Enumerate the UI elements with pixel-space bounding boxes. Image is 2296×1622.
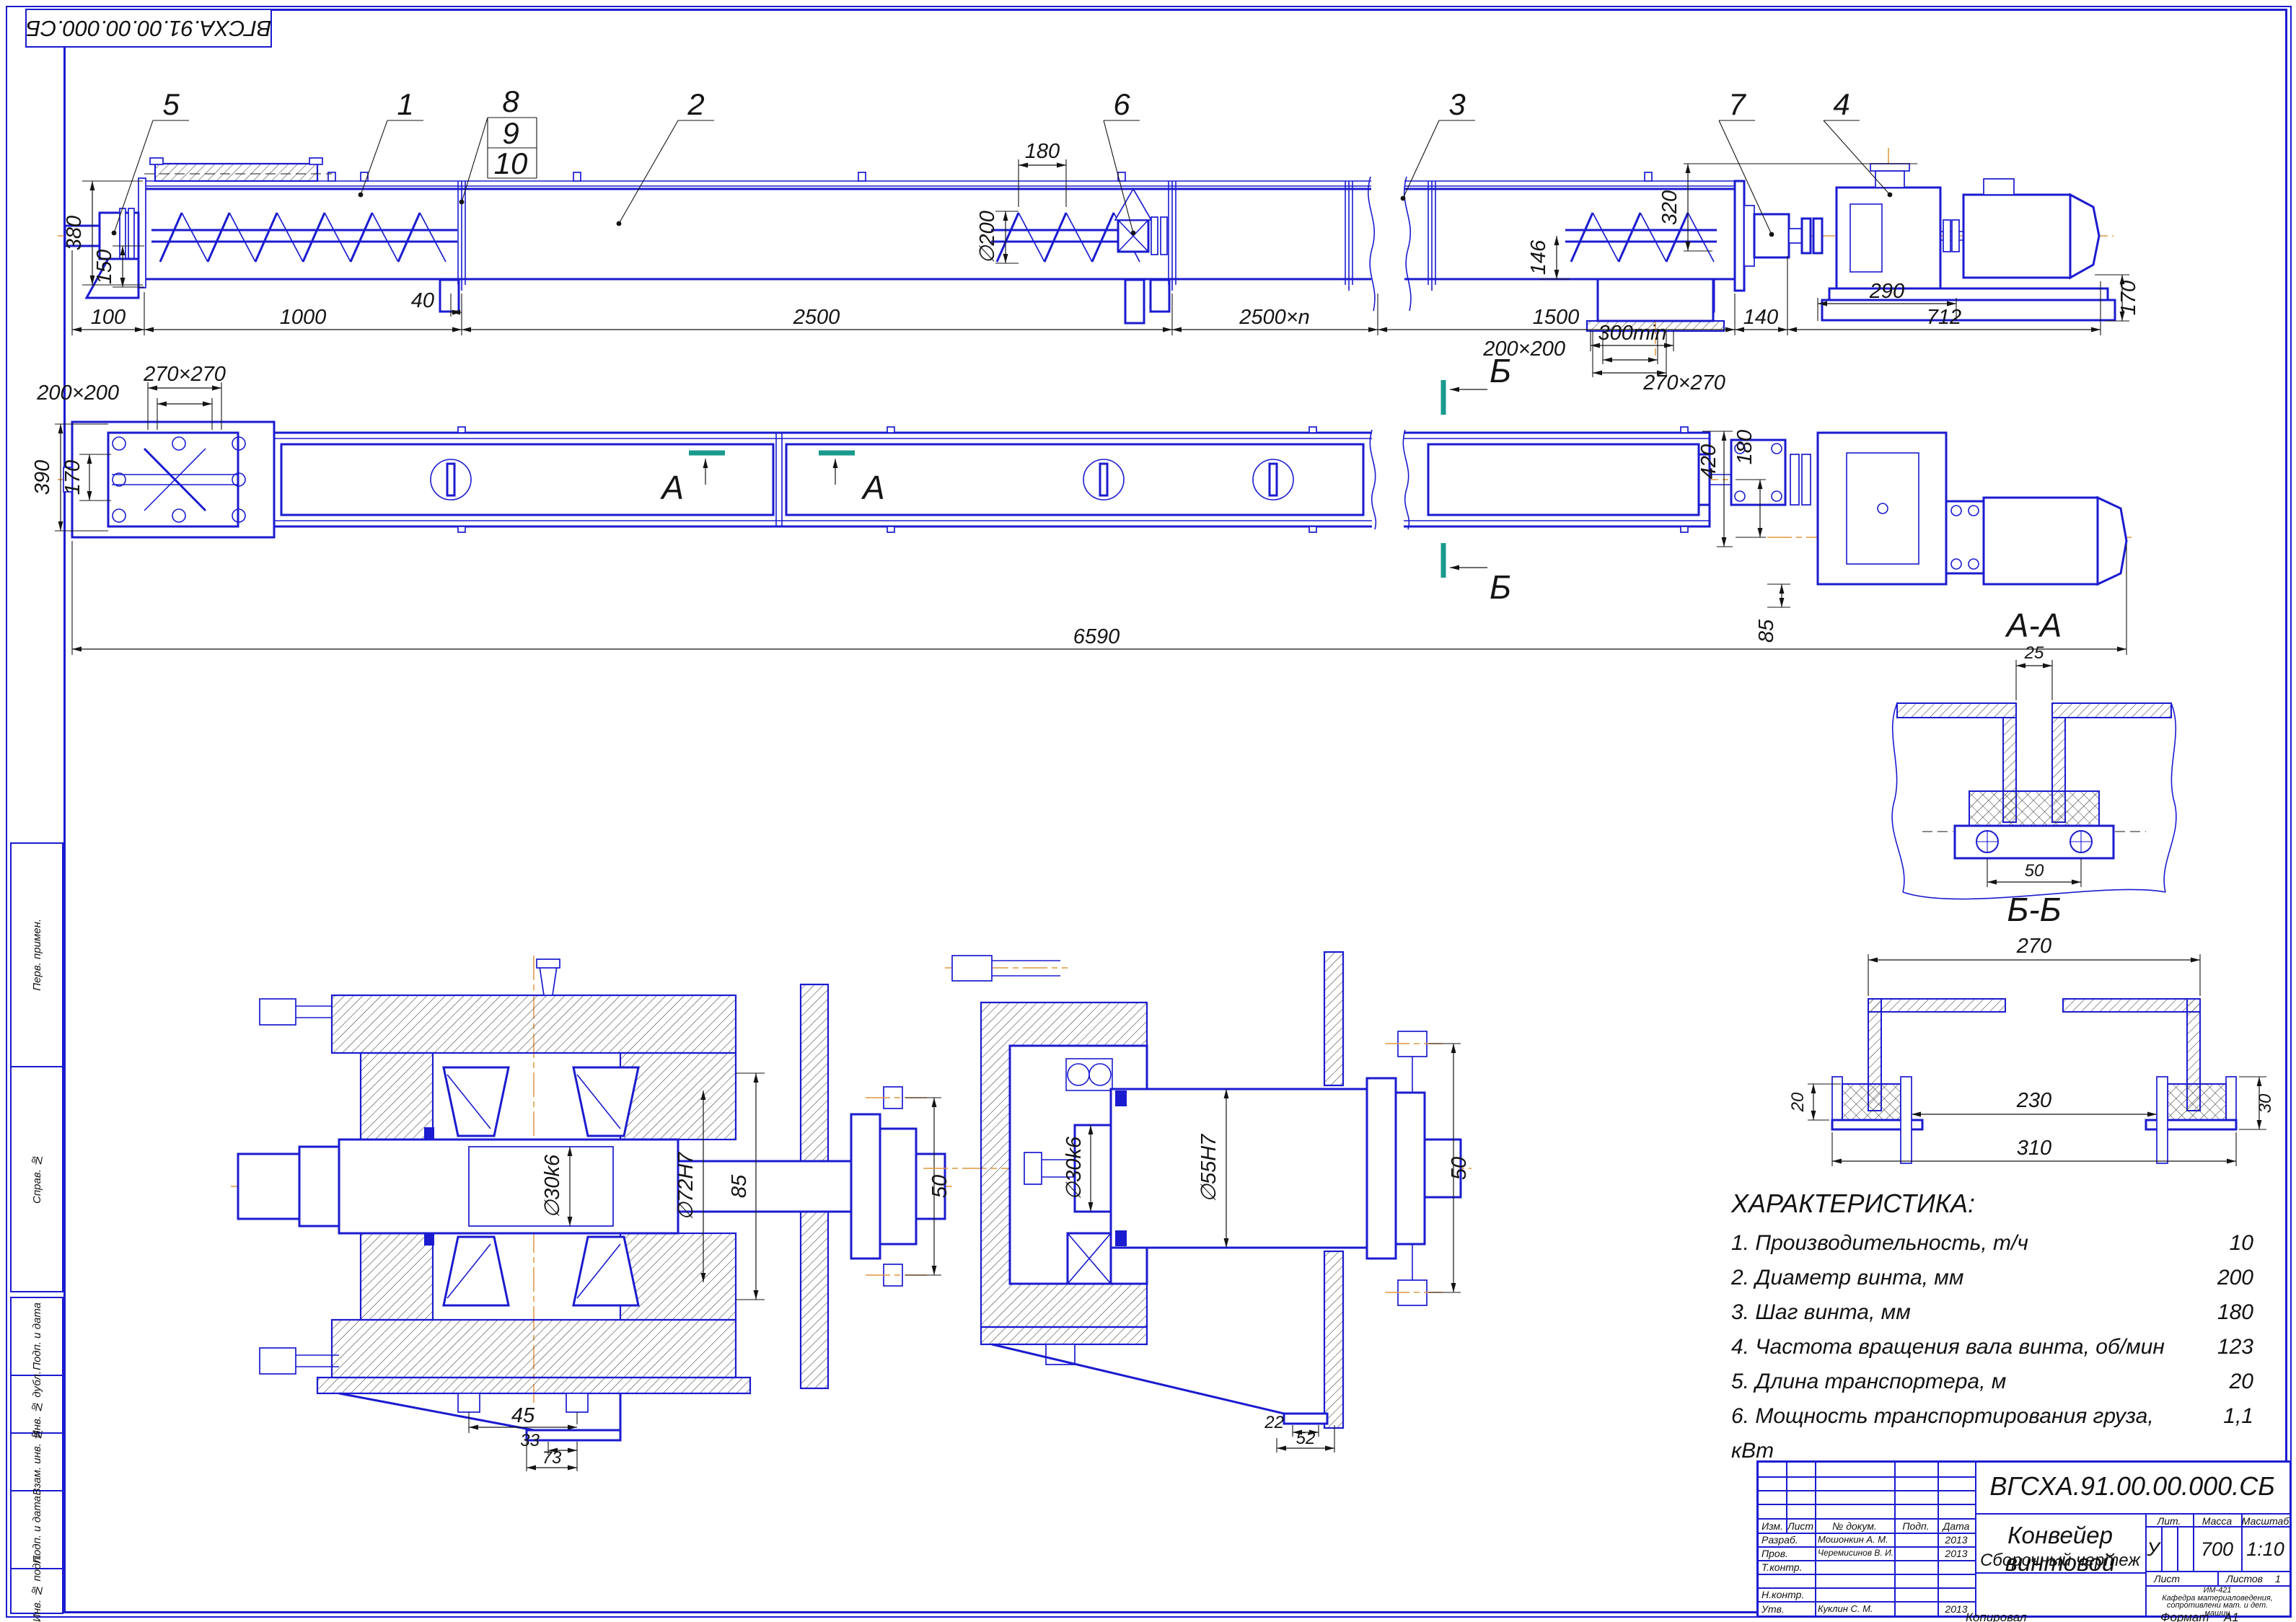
dim-label: 45	[511, 1404, 535, 1427]
detail-hanger-bearing: ∅30k6 ∅55H7 50 22 52	[923, 923, 1472, 1460]
svg-text:1: 1	[397, 87, 413, 121]
svg-text:10: 10	[494, 146, 528, 180]
dim-label: 200×200	[36, 382, 119, 405]
section-b-b: Б-Б 270 230 310 20	[1789, 891, 2279, 1179]
dim-label: 85	[1755, 619, 1778, 643]
dim-label: 146	[1527, 239, 1550, 275]
gearbox-plan	[1818, 433, 1946, 584]
motor-plan	[1984, 498, 2098, 584]
characteristic-value: 20	[2196, 1365, 2253, 1399]
svg-text:7: 7	[1728, 87, 1746, 121]
dim-label: 270	[2016, 935, 2051, 958]
dim-label: 25	[2024, 643, 2044, 663]
tb-doc-number: ВГСХА.91.00.00.000.СБ	[1975, 1471, 2290, 1502]
tb-sheet-label: Лист	[2154, 1573, 2180, 1584]
dim-label: ∅30k6	[1063, 1136, 1086, 1200]
dim-label: 150	[93, 250, 116, 284]
dim-label: 140	[1743, 306, 1778, 329]
margin-label-inv-podl: Инв. № подл.	[31, 1554, 43, 1622]
characteristic-text: 4. Частота вращения вала винта, об/мин	[1731, 1330, 2196, 1365]
characteristic-value: 180	[2196, 1295, 2253, 1330]
view-plan: А А Б Б 390 170 270×270	[36, 361, 2142, 707]
dim-label: 170	[2117, 281, 2140, 315]
section-title: А-А	[2005, 607, 2062, 644]
dim-label: 290	[1869, 280, 1904, 303]
tb-col-podp: Подп.	[1894, 1520, 1937, 1532]
svg-text:6: 6	[1113, 87, 1130, 121]
margin-label-sprav-no: Справ. №	[31, 1154, 43, 1204]
tb-tkontr-label: Т.контр.	[1761, 1561, 1802, 1573]
dim-label: ∅72H7	[674, 1151, 698, 1220]
dim-label: 50	[1448, 1157, 1471, 1180]
detail2-shaft	[1075, 1089, 1371, 1248]
tb-lit-value: У	[2145, 1538, 2161, 1561]
tb-razrab-date: 2013	[1937, 1534, 1975, 1546]
margin-box-upper: Перв. примен. Справ. №	[10, 842, 63, 1292]
plan-drive	[1699, 433, 2126, 584]
tb-sheets-label: Листов	[2226, 1573, 2263, 1584]
plan-trough	[97, 427, 1710, 532]
characteristic-text: 1. Производительность, т/ч	[1731, 1226, 2196, 1261]
trough-bottom-stiffeners	[440, 280, 1714, 323]
dim-label: 2500×n	[1239, 306, 1310, 329]
dim-label: 22	[1264, 1413, 1284, 1432]
svg-text:8: 8	[502, 84, 519, 118]
characteristic-row: 1. Производительность, т/ч10	[1731, 1226, 2253, 1261]
dim-label: 1500	[1533, 306, 1580, 329]
tb-nkontr-label: Н.контр.	[1761, 1589, 1804, 1600]
characteristic-row: 5. Длина транспортера, м20	[1731, 1365, 2253, 1399]
dim-label: 40	[411, 289, 434, 312]
characteristic-row: 3. Шаг винта, мм180	[1731, 1295, 2253, 1330]
characteristic-value: 200	[2196, 1261, 2253, 1295]
detail2-support	[981, 1327, 1327, 1424]
cut-label-a: А	[659, 469, 684, 506]
trough-body	[138, 172, 1735, 323]
margin-box-lower: Подп. и дата Инв. № дубл. Взам. инв. № П…	[10, 1297, 63, 1614]
dim-label: 170	[61, 460, 84, 495]
svg-text:4: 4	[1833, 87, 1849, 121]
tb-lit-label: Лит.	[2145, 1515, 2193, 1527]
tb-prov-label: Пров.	[1761, 1548, 1788, 1559]
dim-label: 30	[2256, 1093, 2275, 1113]
tb-col-list: Лист	[1786, 1520, 1815, 1532]
tb-col-data: Дата	[1937, 1520, 1975, 1532]
section-title: Б-Б	[2007, 891, 2061, 928]
margin-label-vzam-inv: Взам. инв. №	[31, 1428, 43, 1496]
dim-label: 380	[63, 216, 86, 250]
stamp-doc-number: ВГСХА.91.00.00.000.СБ	[26, 15, 271, 41]
detail-end-bearing: ∅30k6 ∅72H7 85 50 45 33 73	[231, 898, 952, 1475]
characteristics-block: ХАРАКТЕРИСТИКА: 1. Производительность, т…	[1731, 1189, 2253, 1468]
dim-label: ∅30k6	[541, 1154, 564, 1218]
section-a-a: А-А 25 50	[1854, 609, 2214, 898]
margin-label-podp-data-1: Подп. и дата	[31, 1303, 43, 1370]
dim-label: 230	[2016, 1089, 2051, 1112]
dim-label: 100	[91, 306, 126, 329]
callout-3: 3	[1401, 87, 1475, 200]
svg-text:9: 9	[502, 116, 519, 150]
bottom-margin-labels: Копировал Формат А1	[1756, 1613, 2287, 1622]
dim-label: 6590	[1073, 625, 1120, 648]
dim-label: 85	[728, 1174, 751, 1198]
svg-text:3: 3	[1448, 87, 1465, 121]
cut-label-b: Б	[1490, 352, 1511, 389]
dim-label: 390	[31, 460, 54, 495]
characteristic-text: 3. Шаг винта, мм	[1731, 1295, 2196, 1330]
dim-label: ∅55H7	[1197, 1133, 1220, 1202]
tb-org-line: сопротивлени мат. и дет.	[2145, 1602, 2290, 1610]
tb-mass-label: Масса	[2193, 1515, 2241, 1527]
tb-prov-date: 2013	[1937, 1548, 1975, 1559]
cut-label-a: А	[861, 469, 885, 506]
dim-label: 270×270	[143, 363, 226, 386]
tb-razrab-name: Мошонкин А. М.	[1818, 1534, 1888, 1545]
view-main-elevation: 100 1000 2500 2500×n 1500 140 712 40 290…	[36, 40, 2142, 379]
dim-label: 20	[1788, 1092, 1808, 1112]
characteristic-text: 2. Диаметр винта, мм	[1731, 1261, 2196, 1295]
characteristic-value: 1,1	[2196, 1399, 2253, 1468]
margin-cell: Перв. примен.	[12, 844, 62, 1067]
tb-doc-type: Сборочный чертеж	[1975, 1551, 2145, 1571]
characteristic-text: 6. Мощность транспортирования груза, кВт	[1731, 1399, 2196, 1468]
dim-label: 310	[2017, 1137, 2051, 1160]
svg-text:2: 2	[687, 87, 704, 121]
inlet-flange	[144, 158, 332, 181]
characteristic-row: 4. Частота вращения вала винта, об/мин12…	[1731, 1330, 2253, 1365]
tb-scale-value: 1:10	[2241, 1538, 2290, 1561]
dim-label: 2500	[793, 306, 840, 329]
dim-label: 180	[1733, 430, 1756, 464]
margin-label-perv-primen: Перв. примен.	[31, 919, 43, 991]
characteristic-row: 6. Мощность транспортирования груза, кВт…	[1731, 1399, 2253, 1468]
characteristic-row: 2. Диаметр винта, мм200	[1731, 1261, 2253, 1295]
tb-scale-label: Масштаб	[2241, 1515, 2290, 1527]
dim-label: 320	[1658, 190, 1681, 225]
dim-label: 73	[542, 1448, 562, 1468]
plan-inlet	[63, 422, 274, 537]
title-block: Изм. Лист № докум. Подп. Дата Разраб. Мо…	[1756, 1460, 2292, 1618]
characteristics-title: ХАРАКТЕРИСТИКА:	[1731, 1189, 2253, 1219]
characteristic-value: 10	[2196, 1226, 2253, 1261]
dim-label: 300min	[1598, 322, 1666, 345]
tb-razrab-label: Разраб.	[1761, 1534, 1798, 1546]
tb-prov-name: Черемисинов В. И.	[1818, 1548, 1893, 1558]
format-value: А1	[2224, 1613, 2239, 1622]
margin-cell: Справ. №	[12, 1067, 62, 1290]
copied-label: Копировал	[1966, 1613, 2027, 1622]
svg-text:5: 5	[162, 87, 180, 121]
dim-label: 420	[1697, 444, 1720, 479]
gearbox	[1837, 188, 1940, 288]
tb-col-izm: Изм.	[1759, 1520, 1786, 1532]
characteristic-text: 5. Длина транспортера, м	[1731, 1365, 2196, 1399]
bb-dimensions: 270 230 310 20 30	[1788, 935, 2275, 1166]
dim-label: ∅200	[976, 211, 999, 264]
dim-label: 1000	[280, 306, 327, 329]
drive-unit	[1735, 164, 2115, 320]
tb-org-line: ИМ-421	[2145, 1587, 2290, 1595]
tb-col-ndok: № докум.	[1815, 1520, 1894, 1532]
margin-label-podp-data-2: Подп. и дата	[31, 1496, 43, 1564]
tb-mass-value: 700	[2193, 1538, 2241, 1561]
format-label: Формат	[2160, 1613, 2209, 1622]
cut-label-b: Б	[1490, 568, 1511, 606]
tb-sheets-value: 1	[2275, 1573, 2281, 1584]
drawing-sheet: ВГСХА.91.00.00.000.СБ Перв. примен. Спра…	[0, 0, 2296, 1622]
dim-label: 33	[520, 1431, 540, 1450]
detail1-shaft	[238, 1127, 678, 1246]
motor	[1963, 195, 2070, 278]
dim-label: 180	[1025, 140, 1060, 163]
characteristic-value: 123	[2196, 1330, 2253, 1365]
dim-label: 52	[1296, 1429, 1316, 1448]
dim-label: 50	[2025, 861, 2044, 881]
